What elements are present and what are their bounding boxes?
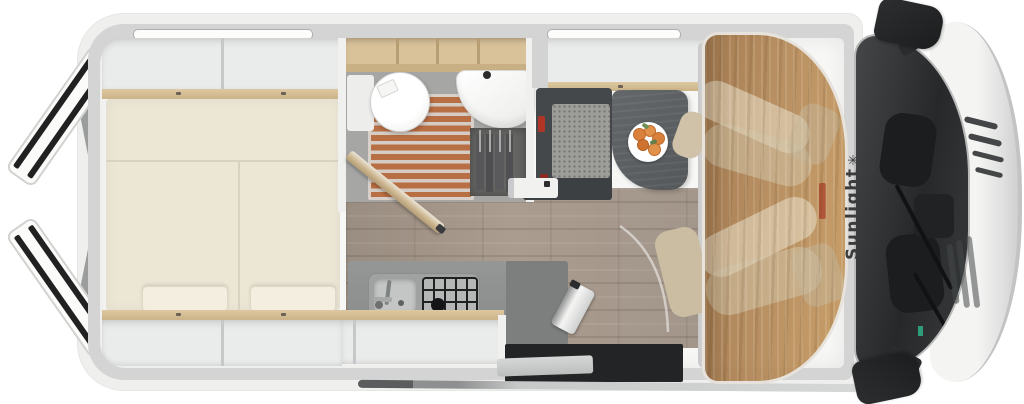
kitchen-shelf-trim: [342, 310, 504, 320]
brand-logo-icon: ✳: [845, 151, 861, 167]
kitchen-counter-end: [506, 261, 568, 345]
windshield: [856, 36, 968, 370]
inspection-sticker: [918, 326, 923, 336]
brand-band: Sunlight ✳: [840, 112, 866, 292]
cab-roof-panel: [702, 32, 848, 384]
sink-faucet-base: [375, 301, 383, 309]
brand-label: Sunlight: [843, 167, 863, 260]
entry-step-silver: [497, 355, 594, 376]
locker-divider: [353, 320, 356, 364]
floorplan-scene: Sunlight ✳: [0, 0, 1024, 404]
sink-drain-dot: [398, 300, 404, 306]
roof-wood-grain: [705, 35, 845, 381]
kitchen-overhead-locker: [342, 320, 502, 364]
